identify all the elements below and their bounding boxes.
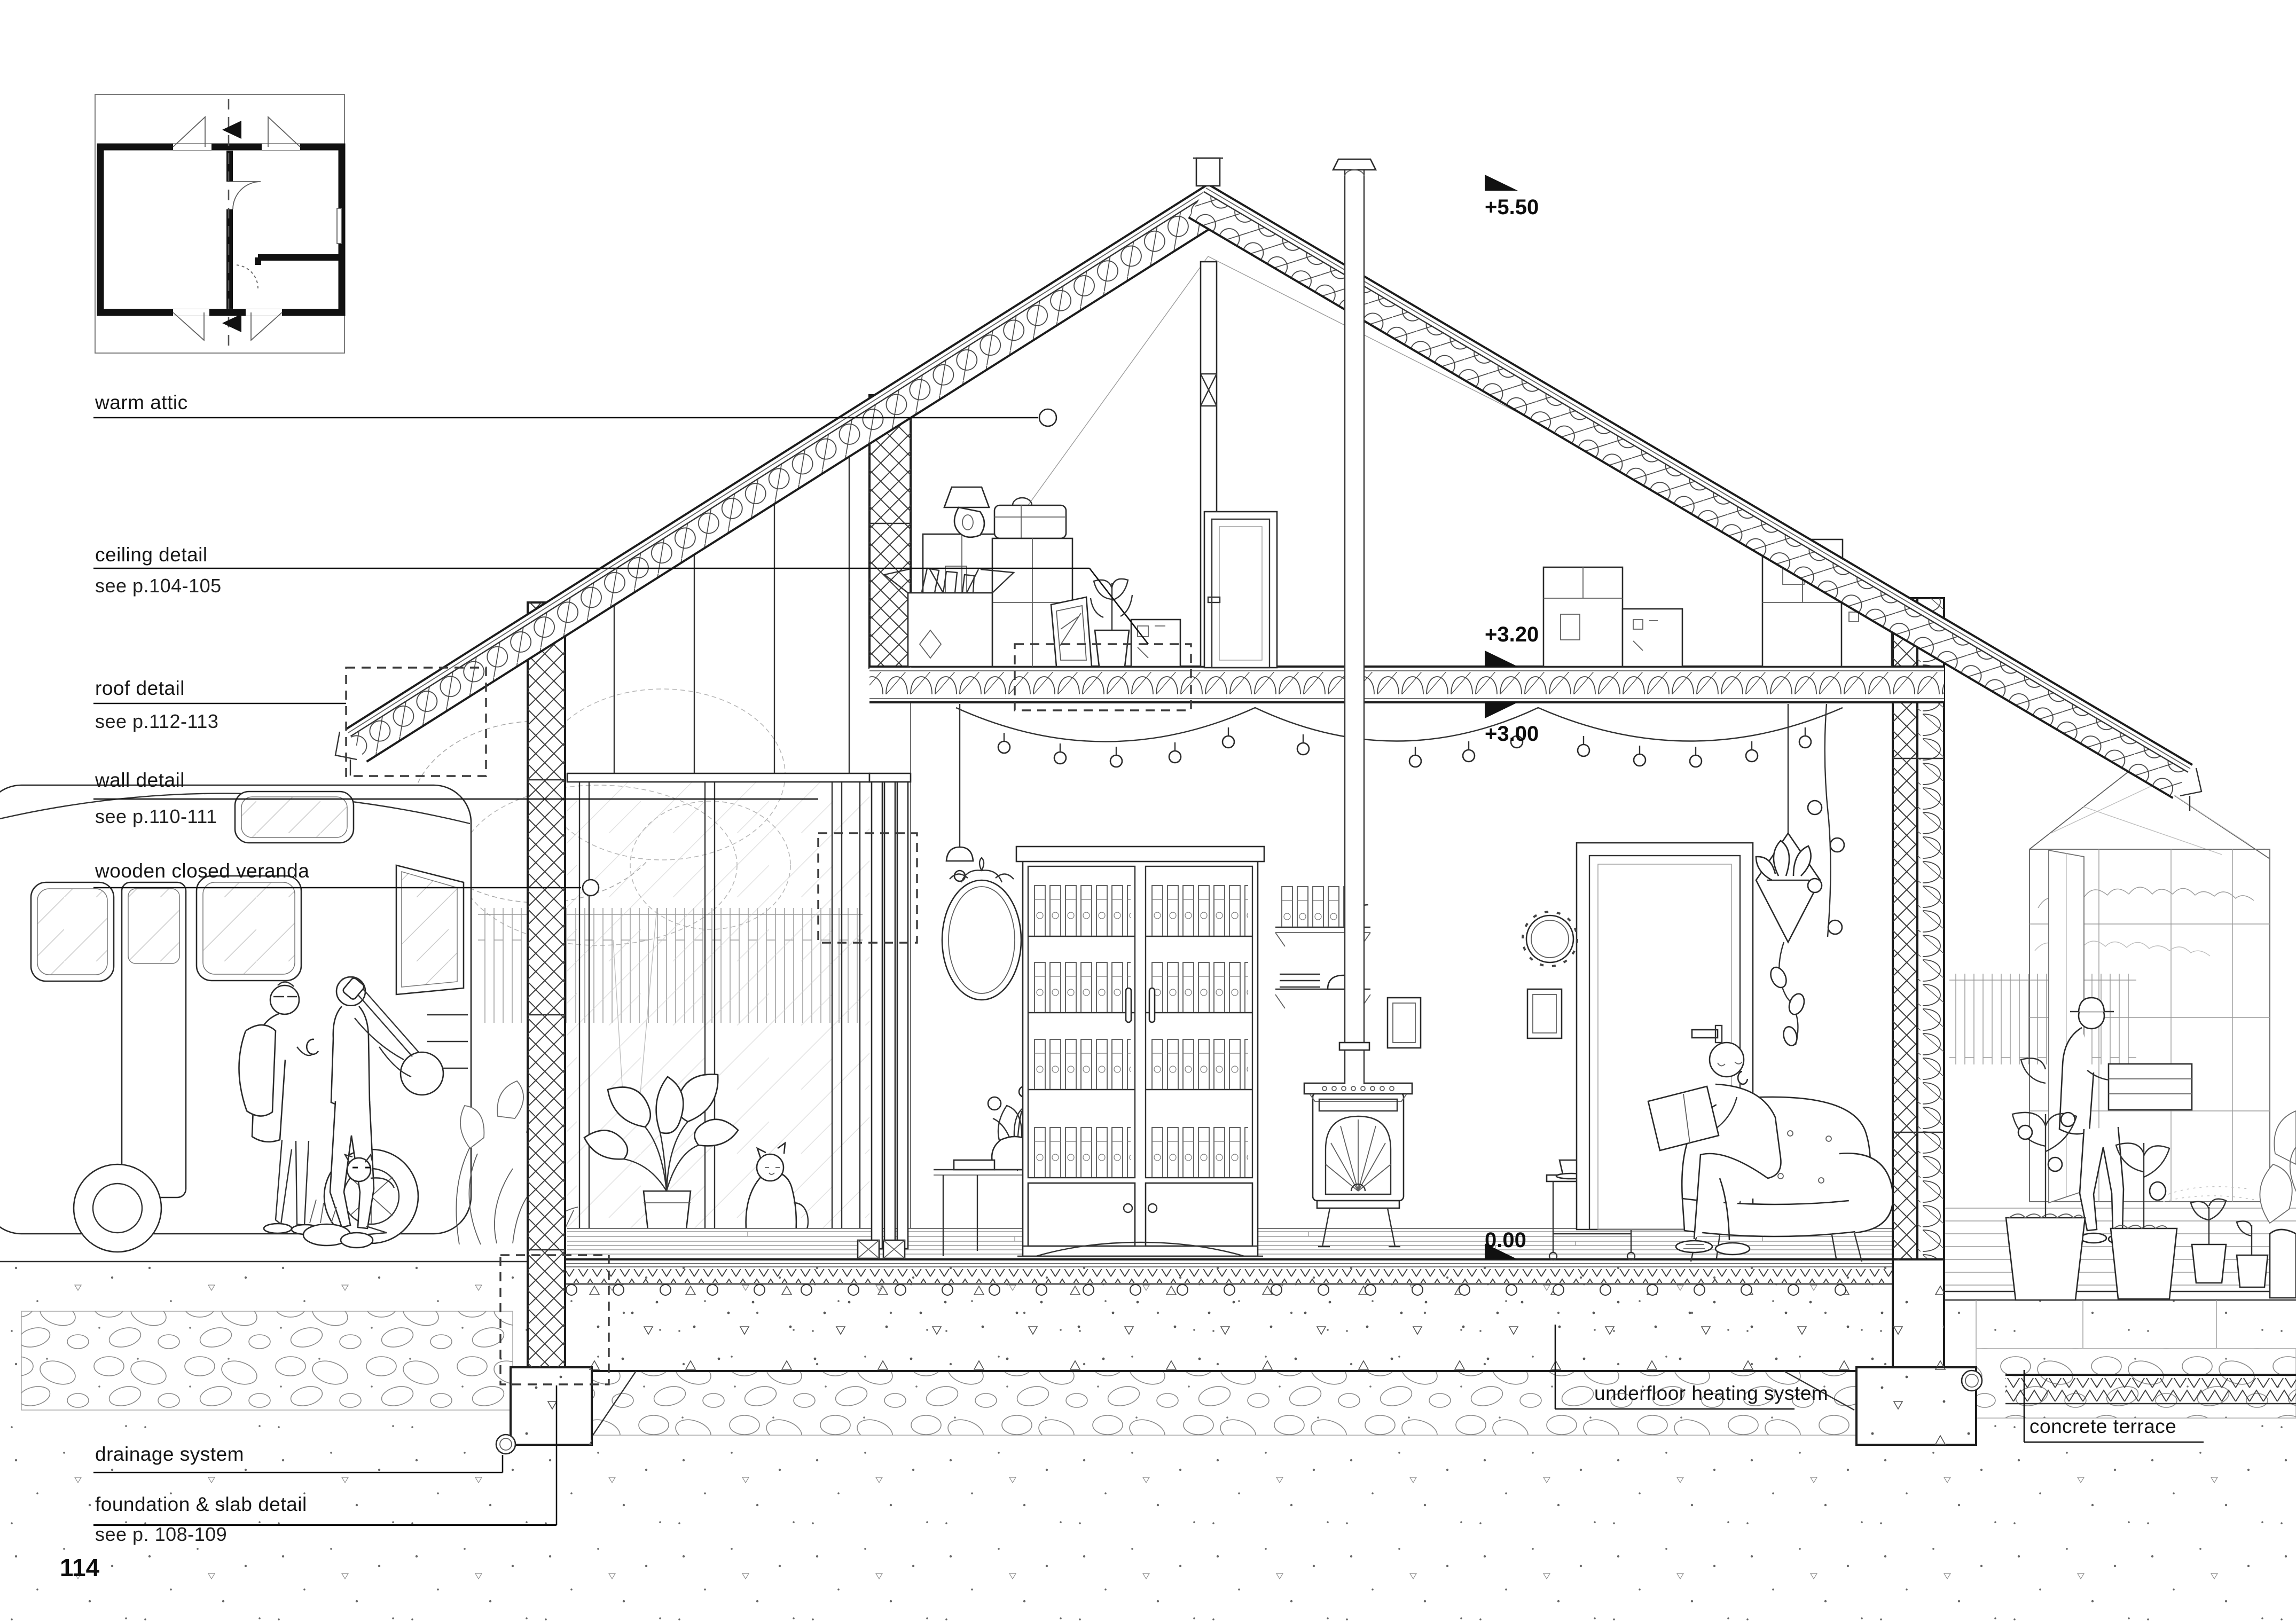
label-foundation-ref: see p. 108-109 <box>95 1523 227 1546</box>
label-ceiling-ref: see p.104-105 <box>95 575 222 597</box>
attic-door <box>1204 512 1277 668</box>
oval-mirror <box>942 858 1021 1000</box>
label-roof-ref: see p.112-113 <box>95 710 218 733</box>
elevation-markers <box>1485 175 1518 1259</box>
picture-frames <box>1388 912 1577 1048</box>
ceiling-attic-floor <box>869 667 1944 702</box>
label-veranda: wooden closed veranda <box>95 860 309 882</box>
label-warm-attic: warm attic <box>95 391 188 414</box>
label-ceiling-detail: ceiling detail <box>95 544 208 566</box>
label-roof-detail: roof detail <box>95 677 185 700</box>
veranda-front-wall <box>528 602 565 1367</box>
bookcase <box>1016 847 1264 1256</box>
right-wall <box>1893 598 1944 1367</box>
section-drawing <box>0 0 2296 1621</box>
label-foundation: foundation & slab detail <box>95 1493 307 1516</box>
page-number: 114 <box>60 1553 99 1582</box>
attic-boxes-left <box>884 487 1180 667</box>
elevation-floor: 0.00 <box>1485 1228 1526 1252</box>
label-wall-detail: wall detail <box>95 769 185 792</box>
label-terrace: concrete terrace <box>2029 1415 2176 1438</box>
garden-fence-right <box>1949 974 2136 1064</box>
architecture-book-page: warm attic ceiling detail see p.104-105 … <box>0 0 2296 1621</box>
elevation-ridge: +5.50 <box>1485 195 1539 220</box>
camper-van <box>0 785 471 1252</box>
key-plan <box>95 95 344 353</box>
label-drainage: drainage system <box>95 1443 244 1466</box>
elevation-attic-floor: +3.20 <box>1485 623 1539 647</box>
wood-stove <box>1304 1083 1412 1247</box>
elevation-ceiling: +3.00 <box>1485 722 1539 746</box>
vertical-light-string <box>1825 704 1831 937</box>
hanging-plant <box>1756 704 1820 1047</box>
label-underfloor: underfloor heating system <box>1594 1382 1828 1405</box>
living-room <box>911 702 1893 1262</box>
label-wall-ref: see p.110-111 <box>95 805 217 828</box>
pendant-lamp <box>946 704 975 896</box>
